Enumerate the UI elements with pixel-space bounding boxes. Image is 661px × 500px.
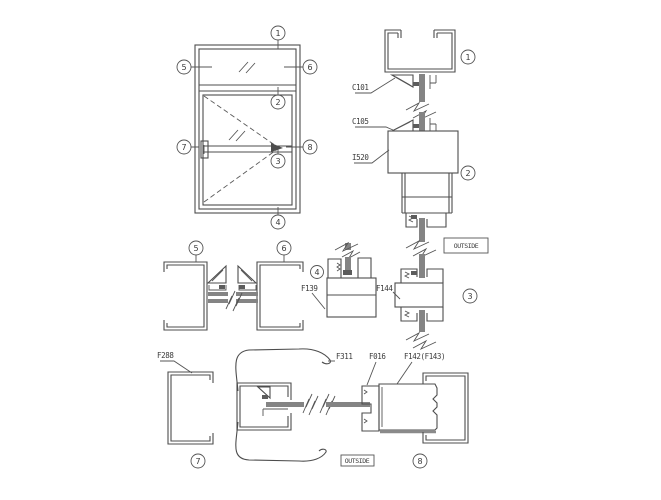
frame-inner [199, 49, 296, 209]
glass-pane [208, 299, 228, 303]
head-channel-outer [385, 30, 455, 72]
glass-pane [419, 74, 425, 102]
leader-f016 [367, 362, 376, 385]
label-f311: F311 [336, 352, 352, 361]
callout-4: 4 [275, 218, 280, 227]
opening-direction-lines [204, 96, 279, 202]
callout-3: 3 [275, 157, 280, 166]
callout-stems [196, 255, 284, 262]
label-f288: F288 [157, 351, 174, 360]
f139-right-wall [358, 258, 371, 278]
opening-apex-arrow [271, 143, 283, 152]
callout-8: 8 [307, 143, 312, 152]
f311-wrap-bottom [236, 422, 326, 461]
callout-2: 2 [465, 169, 470, 178]
label-f142: F142(F143) [404, 352, 445, 361]
transom-body [402, 173, 452, 213]
callout-8: 8 [417, 457, 422, 466]
glass-pane [266, 402, 304, 407]
jamb-left-inner [167, 265, 204, 327]
f311-wrap-top [236, 349, 331, 391]
window-section-drawing: 1 5 6 2 7 8 3 4 [0, 0, 661, 500]
callout-1: 1 [465, 53, 470, 62]
pocket-serration [337, 263, 340, 271]
outside-label-mid: OUTSIDE [454, 242, 479, 250]
gasket [219, 285, 225, 289]
leader-f139 [312, 293, 325, 309]
jamb-left-outer [164, 262, 207, 330]
glazing-bead [238, 266, 256, 283]
jamb-f288-inner [171, 375, 210, 441]
jamb-right-inner [260, 265, 300, 327]
callout-7: 7 [181, 143, 186, 152]
label-i520: I520 [352, 153, 369, 162]
glass-pane [419, 310, 425, 332]
break-symbol [303, 394, 318, 415]
glass-pane [208, 292, 228, 296]
gasket [343, 270, 352, 275]
window-elevation: 1 5 6 2 7 8 3 4 [177, 26, 317, 229]
callout-6: 6 [307, 63, 312, 72]
glass-pane [236, 292, 258, 296]
i520-profile [388, 131, 458, 173]
label-f144: F144 [376, 284, 393, 293]
f144-body [395, 283, 443, 307]
leader-c105 [355, 127, 393, 130]
f142-profile [379, 384, 437, 430]
cad-drawing-sheet: 1 5 6 2 7 8 3 4 [0, 0, 661, 500]
label-f016: F016 [369, 352, 386, 361]
glass-mark-door [229, 130, 245, 141]
horizontal-jamb-section: 5 6 [164, 241, 303, 330]
gasket [413, 124, 419, 128]
handle [201, 141, 208, 158]
door-jamb-section: F288 F311 F016 F142(F143) OUTSIDE [157, 349, 468, 468]
glass-pane [419, 254, 425, 278]
glass-stop [430, 75, 436, 89]
f139-sill-section: 4 F139 [301, 243, 376, 317]
leader-f288 [160, 361, 192, 373]
leader-f144 [393, 292, 400, 299]
f016-profile [362, 386, 379, 431]
frame-outer [195, 45, 300, 213]
label-f139: F139 [301, 284, 317, 293]
gasket [411, 271, 417, 275]
transom-bar [199, 85, 296, 91]
vertical-section-stack: C101 C105 I520 F144 OUTSIDE 1 2 3 [352, 30, 488, 349]
gasket [262, 395, 268, 399]
callout-2: 2 [275, 98, 280, 107]
glass-pane [419, 112, 425, 131]
label-c101: C101 [352, 83, 368, 92]
gasket [239, 285, 245, 289]
callout-1: 1 [275, 29, 280, 38]
callout-4: 4 [314, 268, 319, 277]
pocket-serration [405, 272, 409, 278]
head-channel-inner [388, 33, 452, 69]
callout-5: 5 [193, 244, 198, 253]
break-symbol [406, 333, 436, 349]
pocket-serration [405, 311, 409, 317]
glass-stop [430, 118, 436, 131]
callout-5: 5 [181, 63, 186, 72]
jamb-f288-outer [168, 372, 213, 444]
gasket [411, 215, 417, 219]
sash-frame [203, 95, 292, 205]
f139-body [327, 278, 376, 317]
leader-f142 [397, 362, 412, 384]
stile-step [263, 409, 288, 416]
outside-label-bottom: OUTSIDE [345, 457, 370, 465]
callout-7: 7 [195, 457, 200, 466]
glass-mark-transom [239, 62, 255, 73]
glazing-bead [208, 266, 226, 283]
gasket [413, 82, 419, 86]
glazing-clips [209, 285, 256, 290]
label-c105: C105 [352, 117, 368, 126]
glass-pane [419, 218, 425, 242]
jamb-right-outer [257, 262, 303, 330]
callout-6: 6 [281, 244, 286, 253]
callout-3: 3 [467, 292, 472, 301]
callout-leaders [191, 40, 303, 215]
